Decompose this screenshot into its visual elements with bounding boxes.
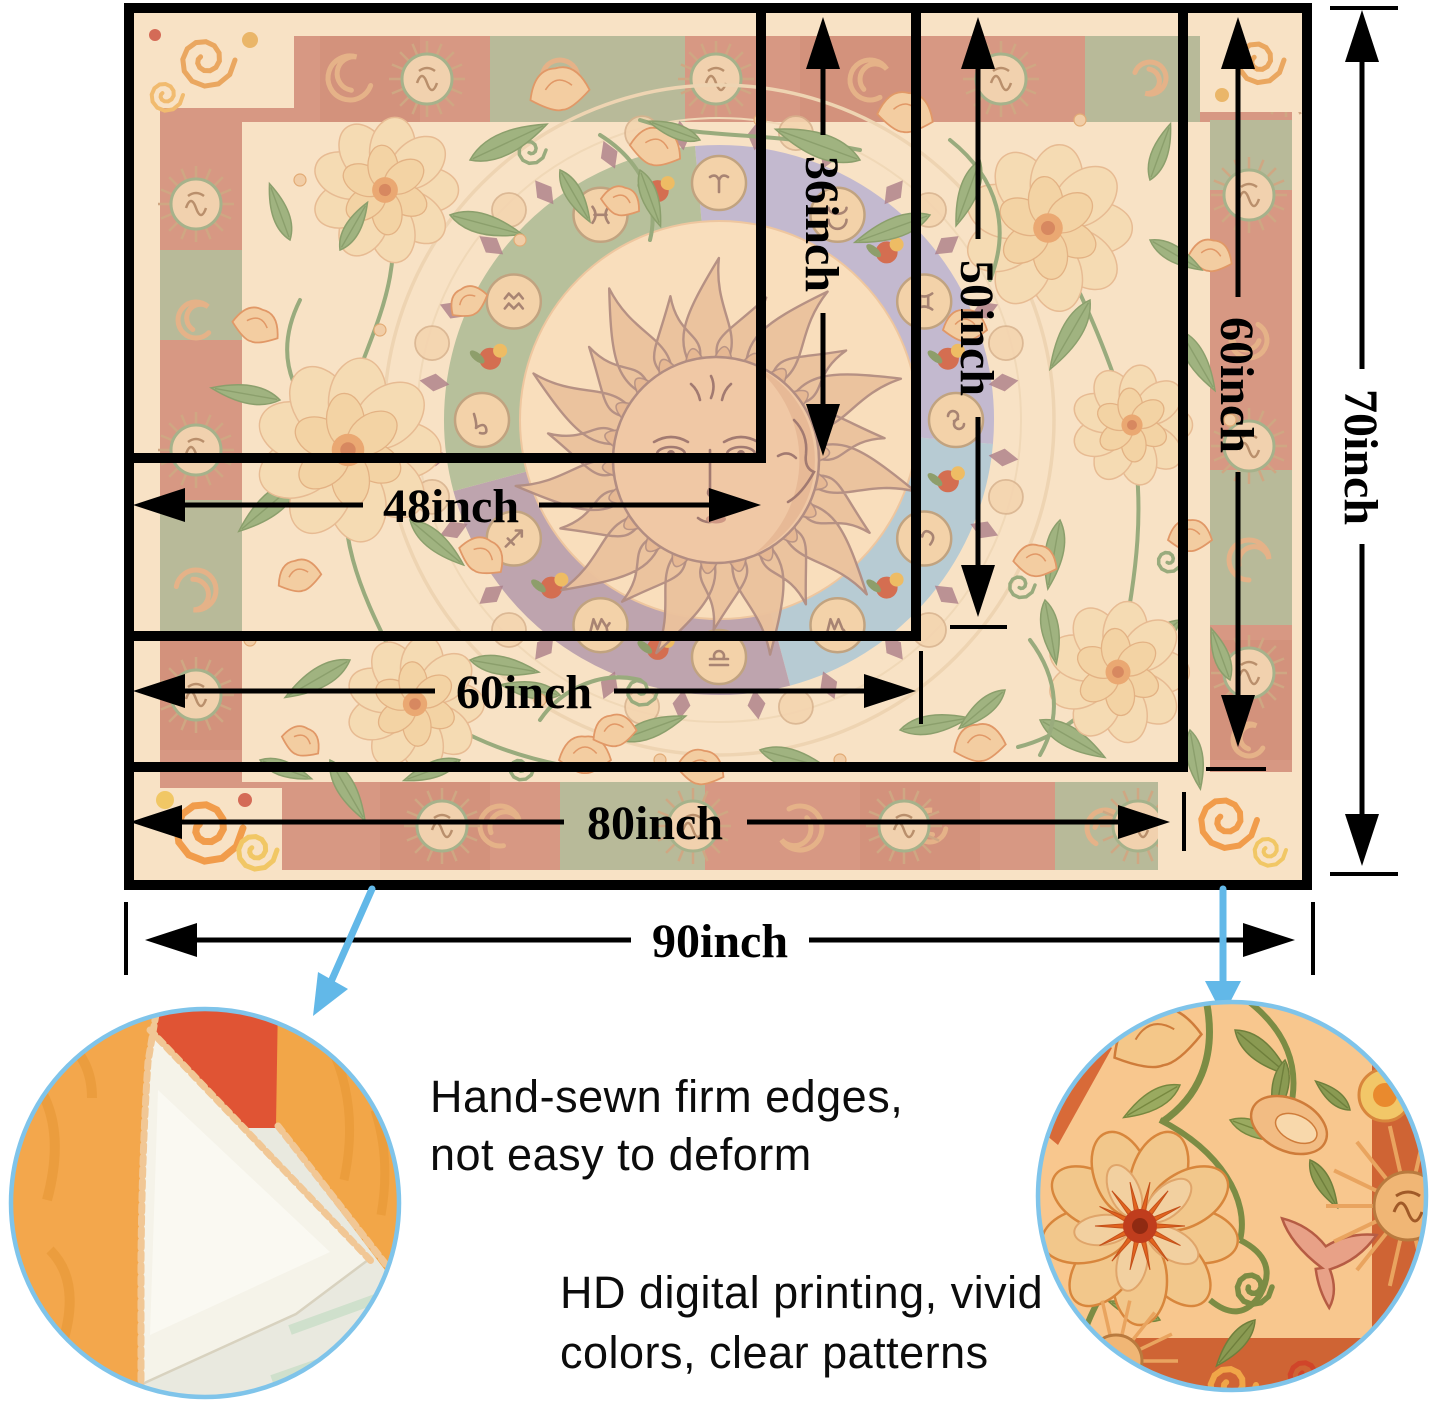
svg-text:60inch: 60inch bbox=[456, 666, 592, 719]
svg-text:48inch: 48inch bbox=[383, 480, 519, 533]
svg-text:90inch: 90inch bbox=[652, 915, 788, 968]
svg-text:80inch: 80inch bbox=[587, 797, 723, 850]
svg-text:70inch: 70inch bbox=[1334, 389, 1387, 525]
svg-text:colors, clear patterns: colors, clear patterns bbox=[560, 1327, 989, 1378]
svg-text:50inch: 50inch bbox=[950, 260, 1003, 396]
svg-text:not easy to deform: not easy to deform bbox=[430, 1129, 812, 1180]
svg-text:36inch: 36inch bbox=[795, 156, 848, 292]
svg-text:Hand-sewn firm edges,: Hand-sewn firm edges, bbox=[430, 1071, 903, 1122]
svg-text:HD digital printing, vivid: HD digital printing, vivid bbox=[560, 1267, 1043, 1318]
svg-text:60inch: 60inch bbox=[1210, 317, 1263, 453]
